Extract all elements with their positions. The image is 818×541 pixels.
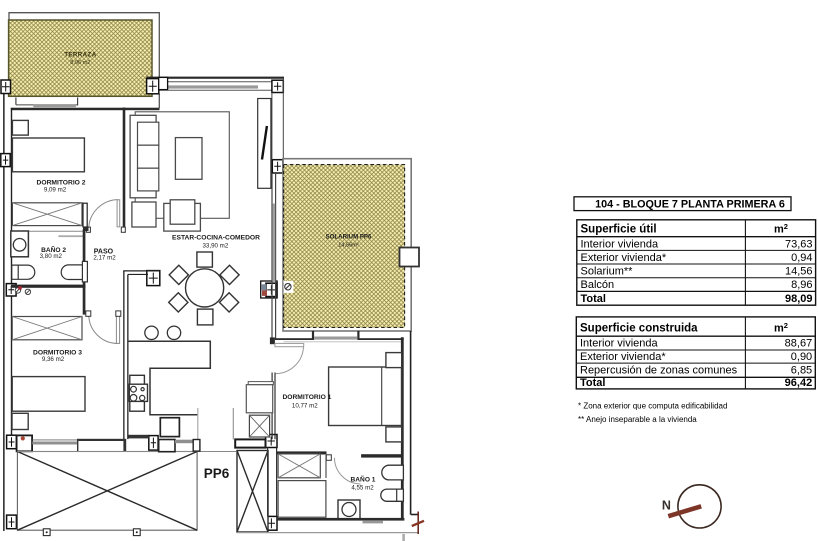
svg-text:SOLARIUM PP6: SOLARIUM PP6	[326, 233, 372, 240]
svg-text:TERRAZA: TERRAZA	[64, 52, 96, 59]
svg-text:98,09: 98,09	[785, 293, 813, 305]
svg-text:104 - BLOQUE 7 PLANTA PRIMERA: 104 - BLOQUE 7 PLANTA PRIMERA 6	[595, 198, 785, 210]
svg-text:Interior vivienda: Interior vivienda	[580, 338, 659, 350]
svg-text:Exterior vivienda*: Exterior vivienda*	[580, 351, 666, 363]
svg-text:Total: Total	[580, 377, 605, 389]
svg-text:4,55 m2: 4,55 m2	[351, 485, 374, 492]
svg-text:8,96 m2: 8,96 m2	[70, 60, 90, 66]
svg-text:Interior vivienda: Interior vivienda	[581, 238, 660, 250]
svg-text:Superficie útil: Superficie útil	[581, 223, 657, 235]
svg-text:88,67: 88,67	[785, 338, 813, 350]
svg-text:0,90: 0,90	[791, 351, 812, 363]
svg-text:Repercusión de zonas comunes: Repercusión de zonas comunes	[580, 364, 738, 376]
svg-text:Total: Total	[581, 293, 606, 305]
svg-text:PP6: PP6	[204, 466, 230, 481]
svg-text:** Anejo inseparable a la vivi: ** Anejo inseparable a la vivienda	[578, 415, 697, 424]
svg-text:8,96: 8,96	[791, 279, 812, 291]
svg-text:14,56: 14,56	[785, 266, 813, 278]
svg-text:3,80 m2: 3,80 m2	[40, 253, 63, 260]
svg-text:96,42: 96,42	[785, 377, 813, 389]
svg-text:6,85: 6,85	[791, 364, 812, 376]
svg-text:DORMITORIO 1: DORMITORIO 1	[282, 394, 331, 401]
svg-text:Balcón: Balcón	[581, 279, 615, 291]
svg-text:0,94: 0,94	[791, 252, 812, 264]
svg-text:9,36 m2: 9,36 m2	[42, 356, 65, 363]
svg-text:10,77 m2: 10,77 m2	[292, 403, 318, 410]
svg-text:ESTAR-COCINA-COMEDOR: ESTAR-COCINA-COMEDOR	[172, 235, 260, 242]
svg-text:9,09 m2: 9,09 m2	[44, 187, 67, 194]
svg-text:2,17 m2: 2,17 m2	[93, 254, 116, 261]
svg-text:Exterior vivienda*: Exterior vivienda*	[581, 252, 667, 264]
svg-text:* Zona exterior que computa ed: * Zona exterior que computa edificabilid…	[578, 401, 727, 410]
svg-text:33,90 m2: 33,90 m2	[202, 243, 228, 250]
svg-text:14,56m²: 14,56m²	[338, 243, 359, 249]
svg-text:Superficie construida: Superficie construida	[580, 323, 698, 335]
svg-text:BAÑO 1: BAÑO 1	[351, 475, 376, 484]
svg-text:73,63: 73,63	[785, 238, 813, 250]
svg-text:Solarium**: Solarium**	[581, 266, 634, 278]
svg-text:DORMITORIO 2: DORMITORIO 2	[37, 180, 86, 187]
svg-text:N: N	[662, 498, 671, 512]
